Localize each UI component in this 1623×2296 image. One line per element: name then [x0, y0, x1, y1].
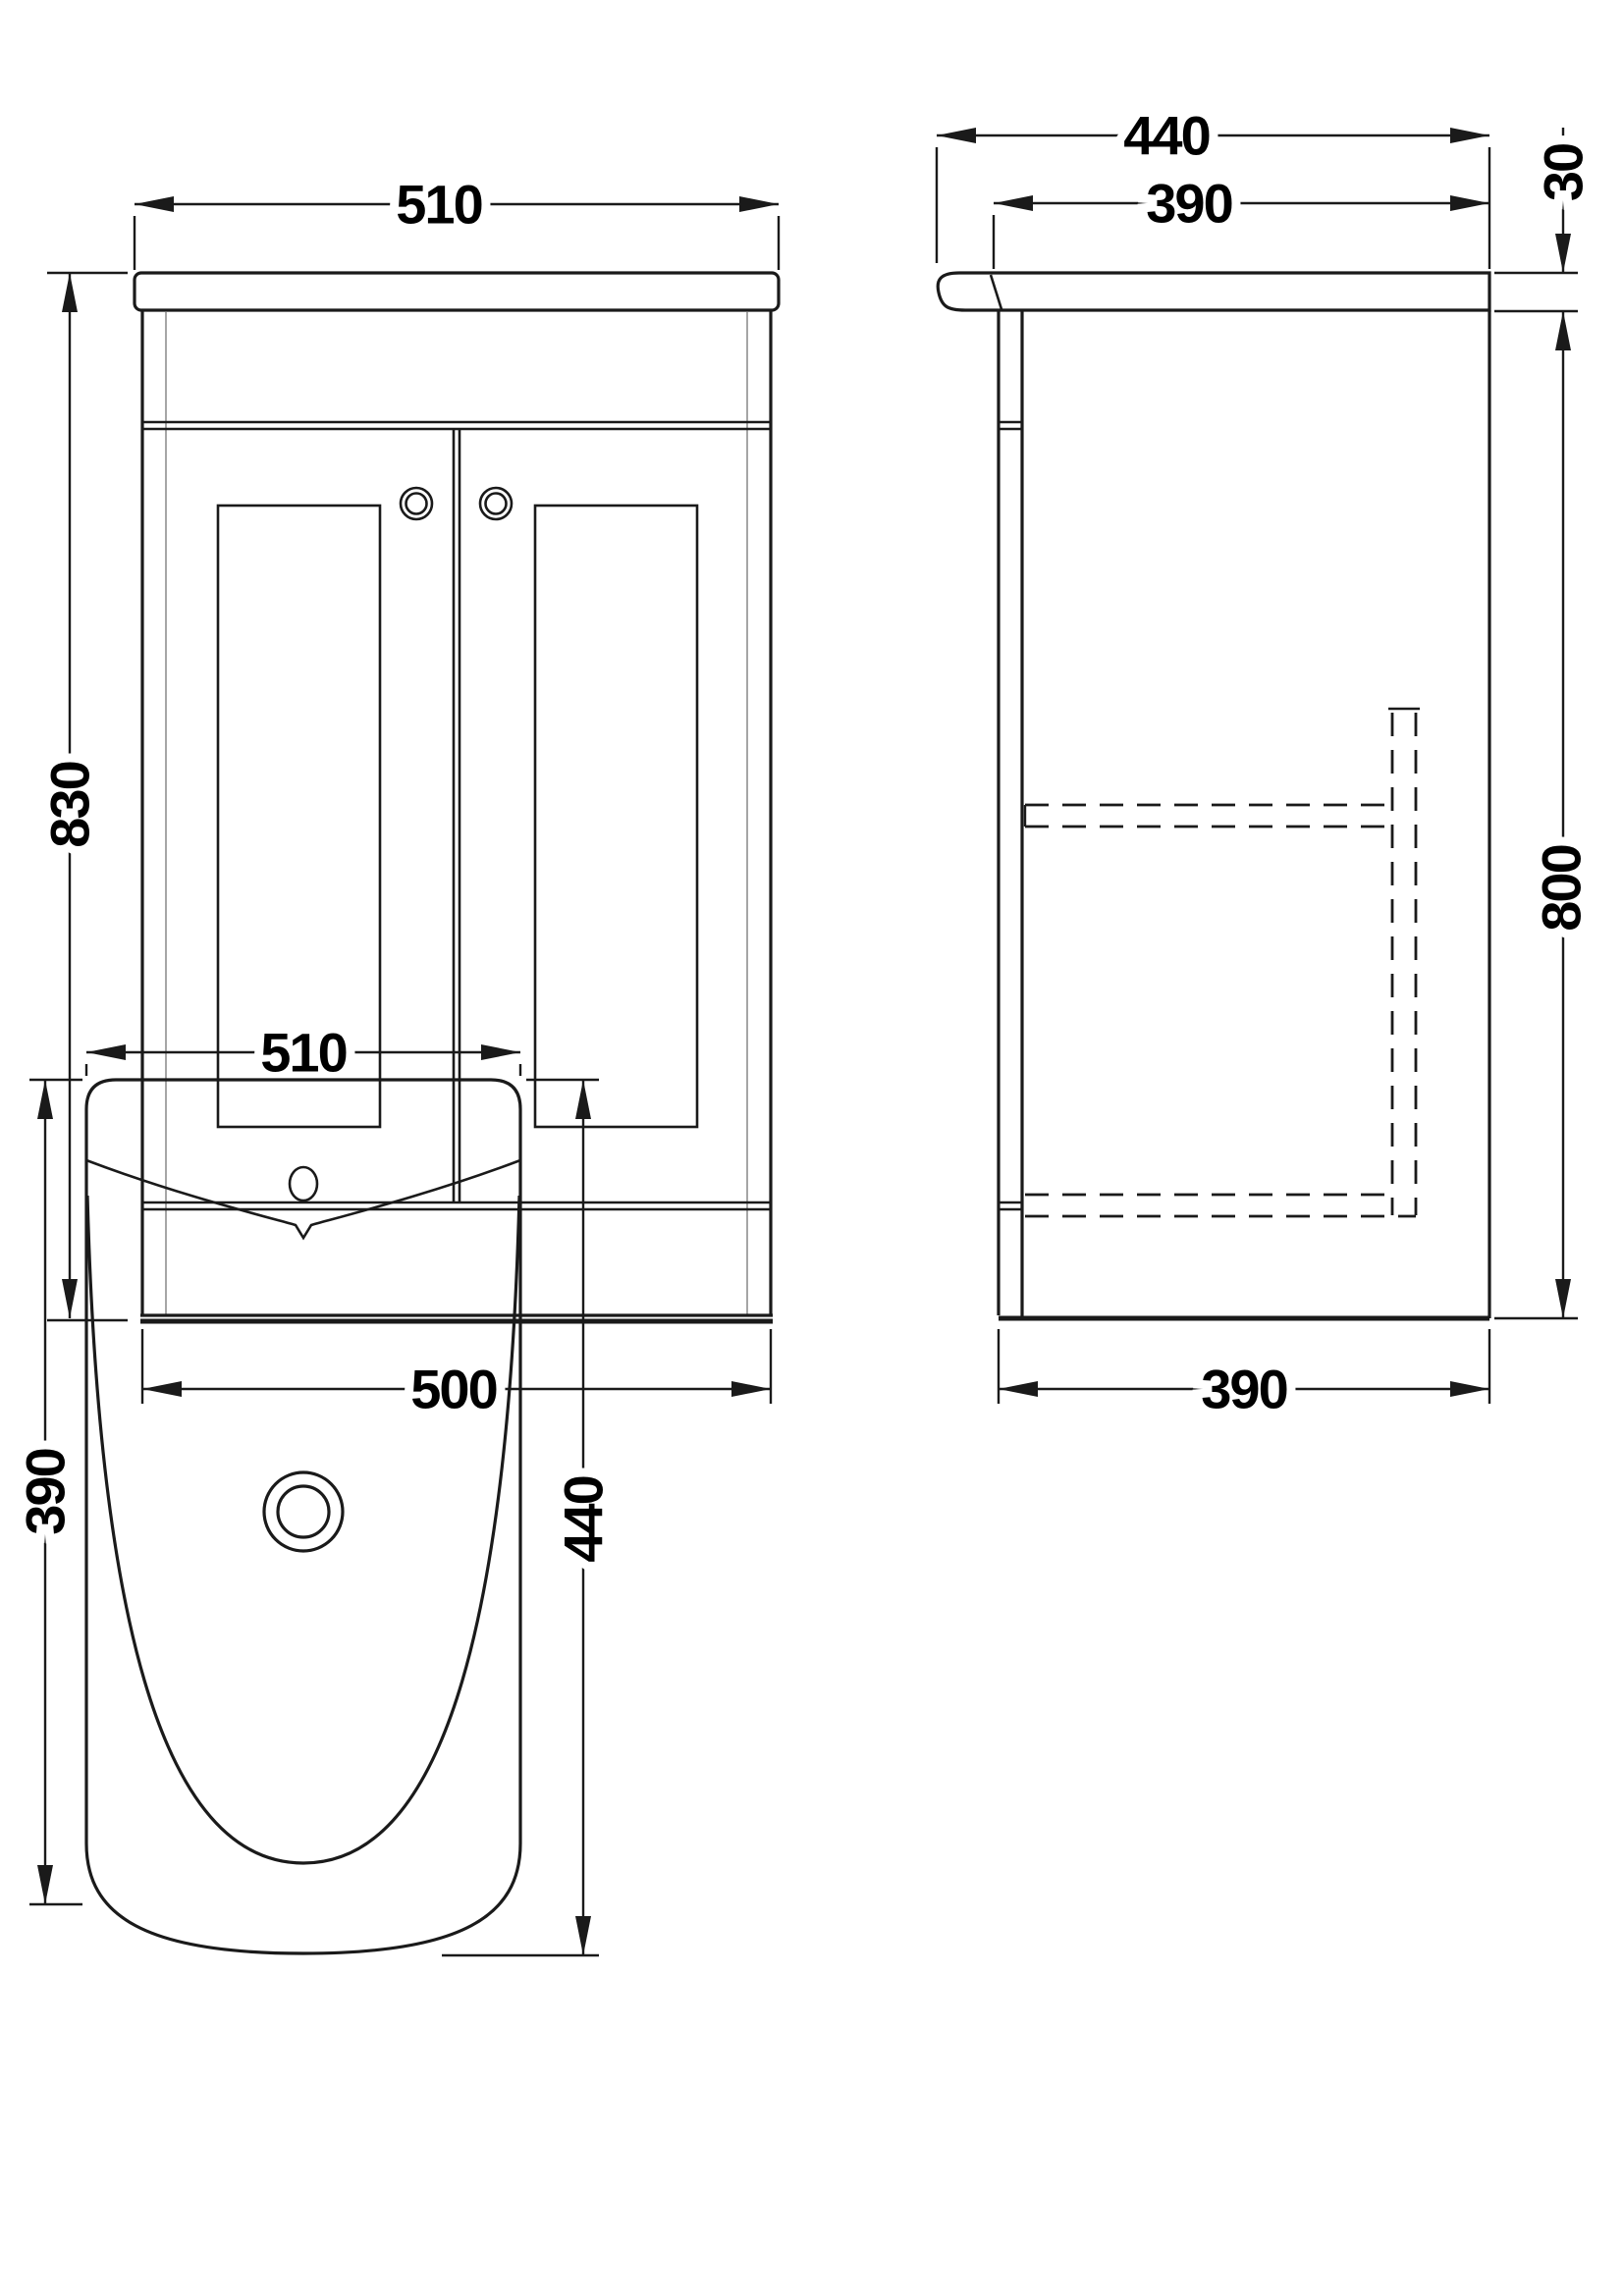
dimension-label: 800: [1531, 845, 1593, 931]
side-depth-body-dimension: 390: [994, 173, 1489, 270]
side-height-dimension: 800: [1494, 311, 1593, 1318]
dimension-label: 30: [1533, 144, 1595, 201]
waste-inner-circle: [278, 1486, 329, 1537]
dimension-label: 440: [553, 1476, 615, 1562]
dimension-label: 500: [410, 1359, 496, 1420]
dimension-label: 510: [396, 174, 481, 236]
plan-view: 510 390 440: [15, 1022, 615, 1956]
basin-outline: [86, 1080, 520, 1953]
tap-hole: [290, 1167, 317, 1201]
counter-thickness-dimension: 30: [1494, 128, 1595, 311]
right-door-panel: [535, 506, 697, 1127]
dimension-label: 440: [1123, 105, 1209, 167]
front-width-bottom-dimension: 500: [142, 1329, 771, 1420]
plan-depth-right-dimension: 440: [442, 1080, 615, 1955]
waste-outer-circle: [264, 1472, 343, 1551]
dimension-label: 390: [1201, 1359, 1286, 1420]
countertop-front: [135, 273, 779, 310]
countertop-side: [938, 273, 1489, 310]
right-door-knob-inner: [486, 494, 507, 514]
bullnose-crease-line: [991, 275, 1001, 309]
front-width-top-dimension: 510: [135, 174, 779, 271]
dimension-label: 830: [39, 762, 101, 847]
basin-bowl-curve: [87, 1196, 519, 1863]
dimension-label: 390: [1146, 173, 1231, 235]
technical-drawing-page: 510 830: [0, 0, 1623, 2296]
plan-width-dimension: 510: [86, 1022, 520, 1084]
dimension-label: 510: [260, 1022, 346, 1084]
hidden-lines: [1025, 709, 1420, 1216]
left-door-knob-inner: [406, 494, 427, 514]
plan-depth-left-dimension: 390: [15, 1080, 83, 1904]
front-height-dimension: 830: [39, 273, 129, 1320]
basin-back-rim-curve: [86, 1160, 520, 1238]
side-depth-bottom-dimension: 390: [999, 1329, 1489, 1420]
vanity-dimension-drawing: 510 830: [0, 0, 1623, 2296]
dimension-label: 390: [15, 1449, 77, 1534]
front-view: 510 830: [39, 174, 780, 1420]
side-view: 440 390 30: [937, 105, 1595, 1420]
